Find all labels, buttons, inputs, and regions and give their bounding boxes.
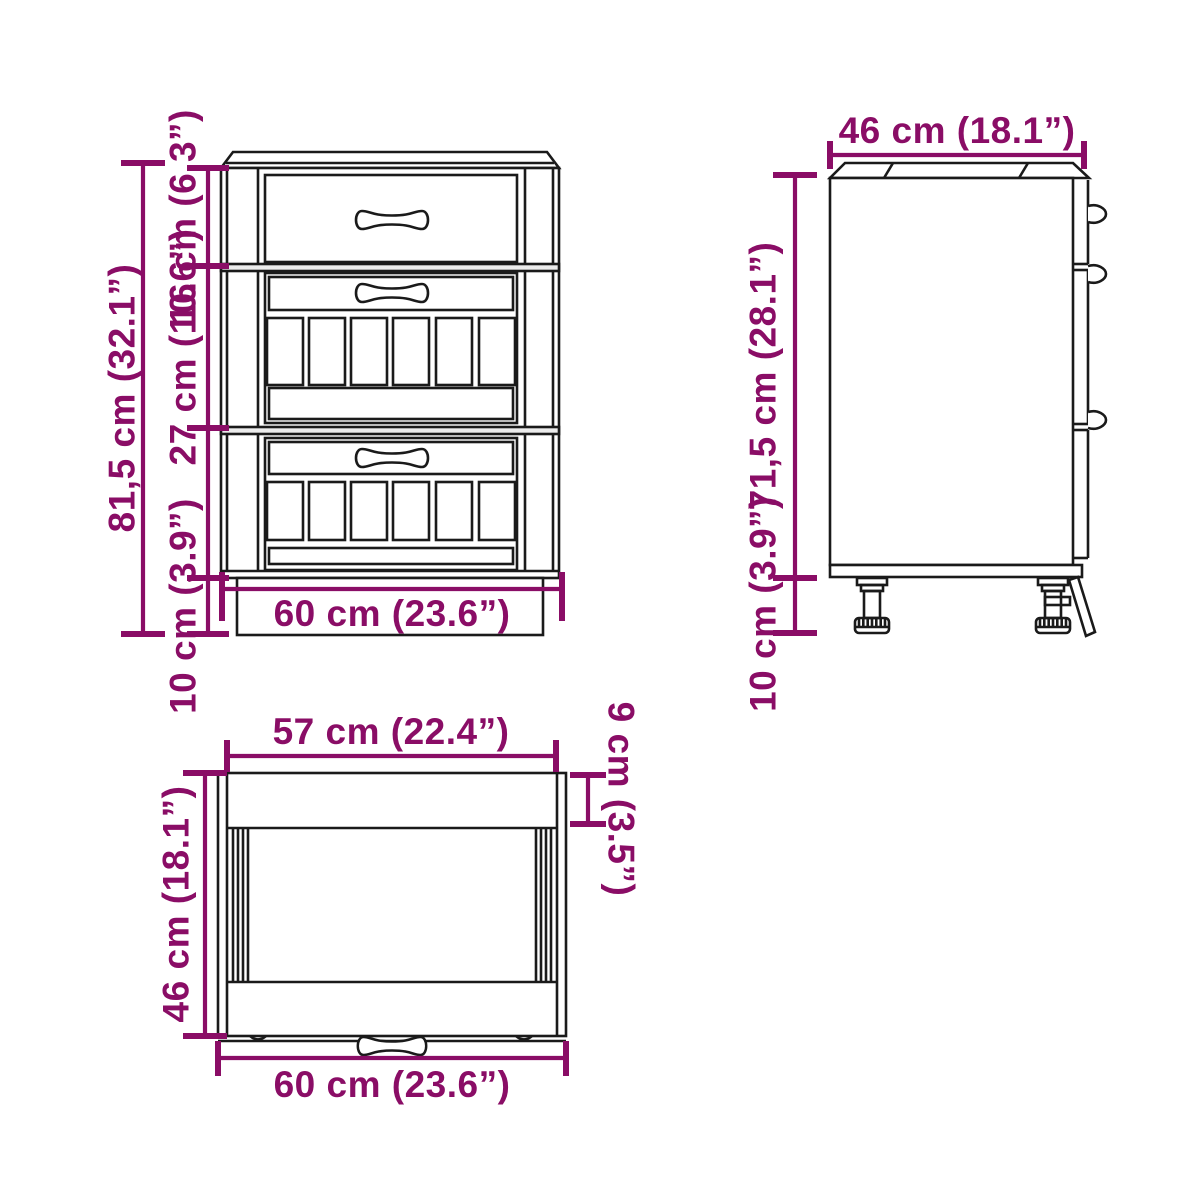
side-leg-height-label: 10 cm (3.9”) xyxy=(743,496,784,712)
side-body-height-label: 71,5 cm (28.1”) xyxy=(743,242,784,511)
top-inner-width-dimension: 57 cm (22.4”) xyxy=(227,711,556,772)
top-front-rail-label: 9 cm (3.5”) xyxy=(601,702,642,897)
cabinet-outline-top xyxy=(218,773,566,1036)
cabinet-top-face xyxy=(221,152,559,168)
side-height-dimensions: 71,5 cm (28.1”) 10 cm (3.9”) xyxy=(743,175,818,712)
side-depth-label: 46 cm (18.1”) xyxy=(839,110,1076,151)
plinth-board xyxy=(1069,577,1095,636)
front-view: 81,5 cm (32.1”) 16 cm (6.3”) 27 cm (10.6… xyxy=(102,109,563,714)
cabinet-side-panel xyxy=(830,178,1073,565)
top-inner-width-label: 57 cm (22.4”) xyxy=(273,711,510,752)
front-total-height-label: 81,5 cm (32.1”) xyxy=(102,264,143,533)
plinth-height-label: 10 cm (3.9”) xyxy=(163,498,204,714)
top-view: 57 cm (22.4”) 9 cm (3.5”) 46 cm (18.1”) … xyxy=(156,702,642,1105)
side-depth-dimension: 46 cm (18.1”) xyxy=(830,110,1084,169)
front-segment-dimensions: 16 cm (6.3”) 27 cm (10.6”) 10 cm (3.9”) xyxy=(163,109,230,714)
front-width-label: 60 cm (23.6”) xyxy=(274,593,511,634)
bottom-panel xyxy=(830,565,1082,577)
rail-divider xyxy=(221,427,559,434)
cabinet-dimension-diagram: 81,5 cm (32.1”) 16 cm (6.3”) 27 cm (10.6… xyxy=(0,0,1200,1200)
top-front-rail-dimension: 9 cm (3.5”) xyxy=(570,702,642,897)
drawer-handle-side xyxy=(1088,411,1106,429)
middle-drawer-height-label: 27 cm (10.6”) xyxy=(163,229,204,466)
rail-divider xyxy=(221,264,559,271)
drawer-handle-side xyxy=(1088,205,1106,223)
drawer-handle-side xyxy=(1088,265,1106,283)
cabinet-top-face xyxy=(830,163,1089,178)
side-view: 46 cm (18.1”) 71,5 cm (28.1”) 10 cm (3.9… xyxy=(743,110,1107,712)
top-depth-dimension: 46 cm (18.1”) xyxy=(156,773,228,1036)
front-total-height-dimension: 81,5 cm (32.1”) xyxy=(102,163,166,634)
top-depth-label: 46 cm (18.1”) xyxy=(156,786,197,1023)
top-width-label: 60 cm (23.6”) xyxy=(274,1064,511,1105)
front-edge-strip xyxy=(1073,180,1088,558)
plinth-clip xyxy=(1045,597,1070,605)
adjustable-foot-rear xyxy=(855,578,889,633)
